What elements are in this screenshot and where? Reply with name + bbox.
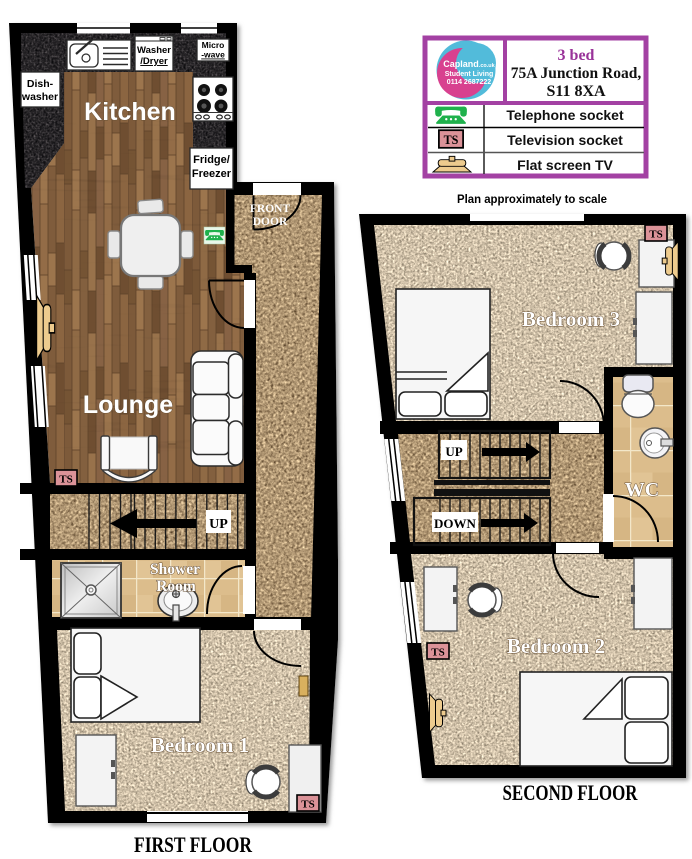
svg-text:Plan approximately to scale: Plan approximately to scale [457,192,607,206]
svg-text:Micro: Micro [202,40,225,50]
svg-text:Flat screen TV: Flat screen TV [517,157,613,173]
svg-text:washer: washer [21,91,58,103]
svg-text:UP: UP [209,517,228,532]
svg-text:FRONT: FRONT [250,203,291,215]
svg-text:DOWN: DOWN [434,516,477,531]
svg-text:Student Living: Student Living [445,71,494,78]
svg-text:UP: UP [445,444,462,459]
svg-text:Washer: Washer [137,45,171,56]
svg-text:0114 2687222: 0114 2687222 [447,79,491,86]
svg-text:Freezer: Freezer [192,168,232,180]
svg-text:Television socket: Television socket [507,132,623,148]
svg-text:Lounge: Lounge [83,391,173,419]
svg-text:SECOND FLOOR: SECOND FLOOR [503,780,639,805]
svg-text:Room: Room [156,578,196,595]
svg-text:/Dryer: /Dryer [140,56,168,67]
svg-text:Fridge/: Fridge/ [193,154,230,166]
svg-text:Shower: Shower [150,561,200,578]
svg-text:WC: WC [625,479,659,501]
svg-text:-wave: -wave [201,50,225,60]
svg-text:DOOR: DOOR [253,216,288,228]
svg-text:Telephone socket: Telephone socket [506,107,624,123]
svg-text:75A Junction Road,: 75A Junction Road, [511,65,642,82]
svg-text:Bedroom 1: Bedroom 1 [151,733,249,757]
svg-text:Dish-: Dish- [27,78,54,90]
svg-text:S11 8XA: S11 8XA [546,83,606,100]
svg-text:3 bed: 3 bed [558,47,595,64]
svg-text:Kitchen: Kitchen [84,98,176,126]
svg-text:Bedroom 3: Bedroom 3 [522,307,620,331]
svg-text:Bedroom 2: Bedroom 2 [507,634,605,658]
svg-text:FIRST FLOOR: FIRST FLOOR [134,832,253,857]
